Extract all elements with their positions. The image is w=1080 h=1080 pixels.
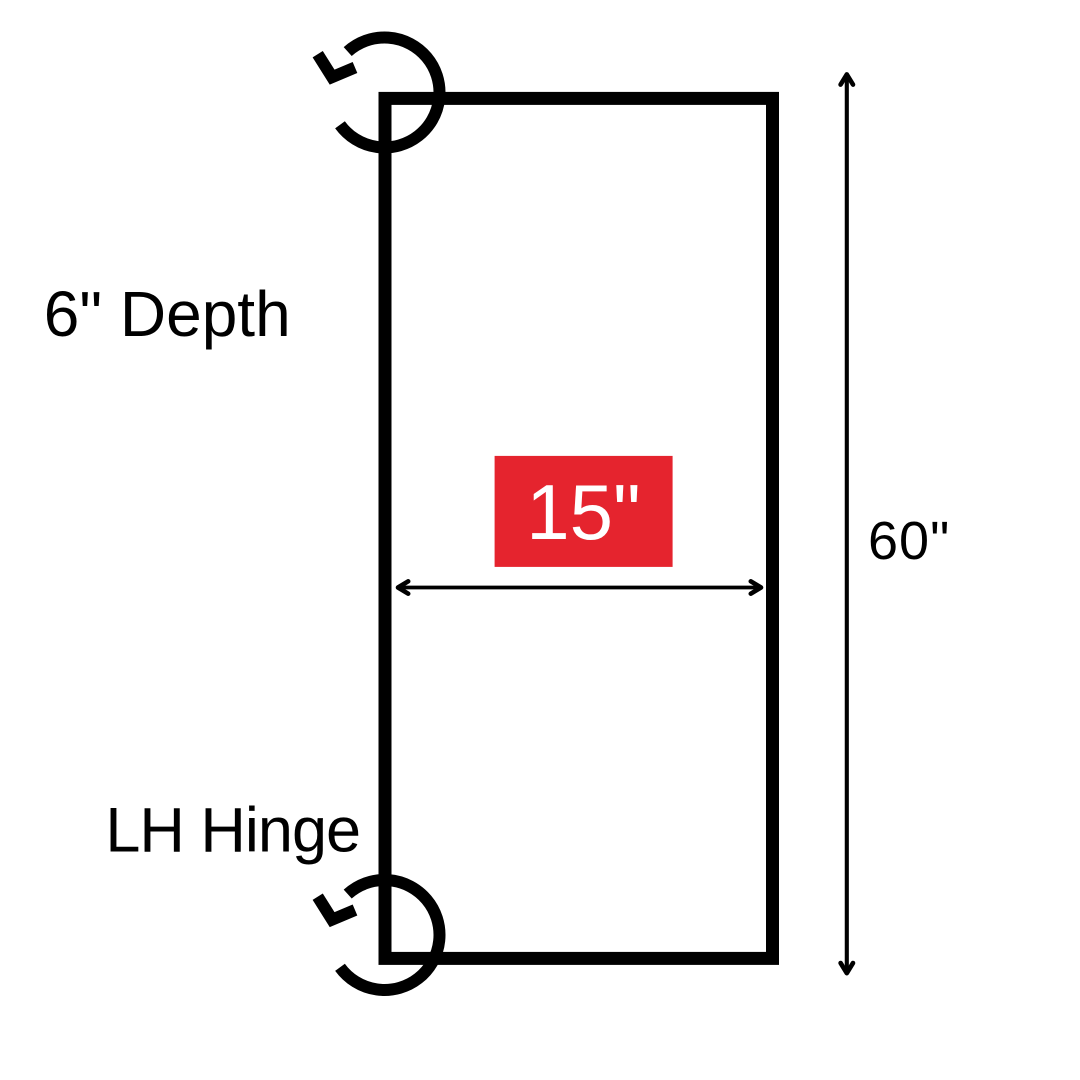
svg-text:LH Hinge: LH Hinge	[105, 795, 360, 865]
svg-text:60": 60"	[868, 511, 950, 571]
svg-text:15": 15"	[526, 468, 640, 556]
svg-text:6" Depth: 6" Depth	[44, 278, 291, 350]
